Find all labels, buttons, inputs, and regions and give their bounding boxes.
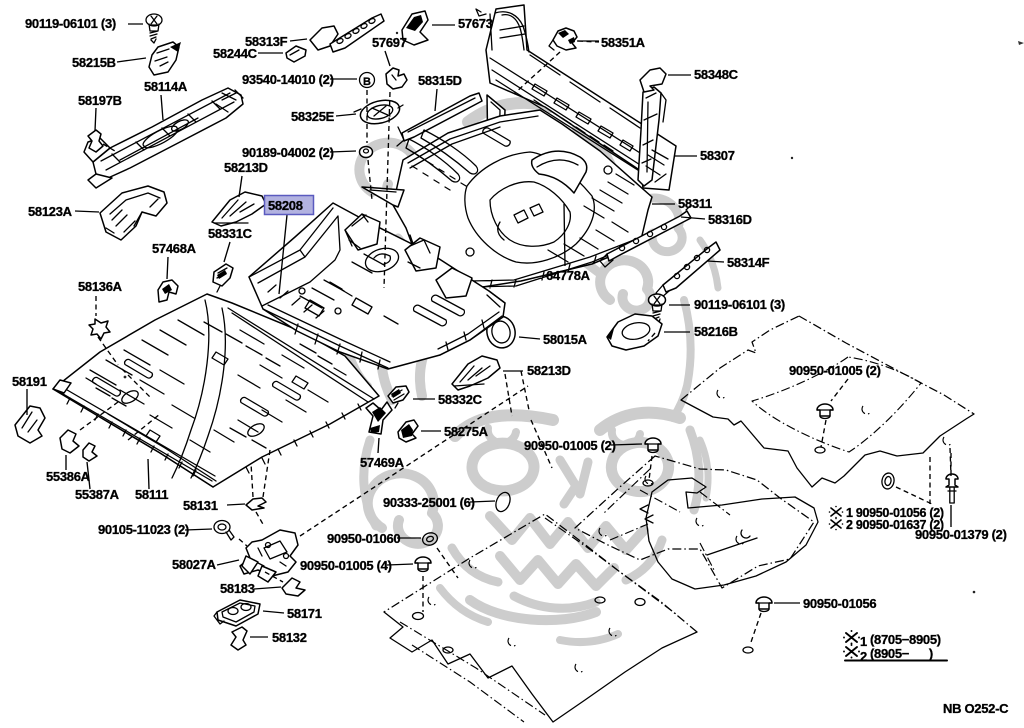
svg-text:57673: 57673: [458, 16, 493, 31]
svg-text:58331C: 58331C: [208, 226, 253, 241]
svg-text:57469A: 57469A: [360, 455, 405, 470]
svg-text:57697: 57697: [372, 35, 407, 50]
svg-text:58314F: 58314F: [727, 255, 770, 270]
svg-text:58348C: 58348C: [694, 67, 739, 82]
svg-text:58183: 58183: [220, 581, 255, 596]
svg-text:58332C: 58332C: [438, 392, 483, 407]
svg-text:58311: 58311: [678, 196, 712, 211]
svg-text:90950-01005 (2): 90950-01005 (2): [524, 438, 616, 453]
svg-text:58131: 58131: [183, 498, 218, 513]
svg-text:1: 1: [860, 634, 867, 649]
svg-text:90105-11023 (2): 90105-11023 (2): [98, 522, 189, 537]
svg-text:90950-01060: 90950-01060: [327, 531, 400, 546]
svg-text:(8905− ): (8905− ): [870, 646, 933, 661]
svg-text:(8705−8905): (8705−8905): [870, 632, 941, 647]
svg-text:58114A: 58114A: [144, 79, 188, 94]
svg-text:58197B: 58197B: [78, 93, 122, 108]
svg-text:58015A: 58015A: [543, 332, 588, 347]
svg-text:90119-06101 (3): 90119-06101 (3): [694, 297, 785, 312]
svg-text:90950-01005 (2): 90950-01005 (2): [789, 363, 881, 378]
svg-text:58132: 58132: [272, 630, 307, 645]
svg-text:58027A: 58027A: [172, 557, 217, 572]
svg-text:B: B: [363, 76, 371, 88]
svg-text:90189-04002 (2): 90189-04002 (2): [242, 145, 334, 160]
svg-text:58215B: 58215B: [72, 55, 116, 70]
svg-text:58315D: 58315D: [418, 73, 462, 88]
svg-text:58316D: 58316D: [708, 212, 752, 227]
svg-text:58325E: 58325E: [291, 109, 335, 124]
svg-text:58136A: 58136A: [78, 279, 123, 294]
svg-text:55387A: 55387A: [75, 487, 120, 502]
svg-text:58208: 58208: [268, 198, 303, 213]
svg-text:NB O252-C: NB O252-C: [943, 701, 1009, 716]
svg-text:58123A: 58123A: [28, 204, 73, 219]
svg-text:58351A: 58351A: [601, 35, 646, 50]
svg-text:58191: 58191: [12, 374, 47, 389]
svg-text:57468A: 57468A: [152, 241, 197, 256]
svg-text:58213D: 58213D: [224, 160, 268, 175]
svg-text:2: 2: [860, 649, 867, 664]
svg-text:90119-06101 (3): 90119-06101 (3): [25, 16, 116, 31]
svg-text:58307: 58307: [700, 148, 735, 163]
svg-text:64778A: 64778A: [546, 268, 591, 283]
svg-text:58244C: 58244C: [213, 46, 258, 61]
svg-text:58275A: 58275A: [444, 424, 489, 439]
svg-text:90333-25001 (6): 90333-25001 (6): [383, 495, 475, 510]
svg-text:58213D: 58213D: [527, 363, 571, 378]
svg-text:90950-01005 (4): 90950-01005 (4): [300, 558, 392, 573]
svg-text:90950-01379 (2): 90950-01379 (2): [915, 527, 1007, 542]
svg-text:58171: 58171: [287, 606, 322, 621]
svg-text:58216B: 58216B: [694, 324, 738, 339]
svg-text:90950-01056: 90950-01056: [803, 596, 876, 611]
svg-text:93540-14010 (2): 93540-14010 (2): [242, 72, 334, 87]
svg-text:58111: 58111: [135, 487, 168, 502]
svg-text:55386A: 55386A: [46, 469, 91, 484]
